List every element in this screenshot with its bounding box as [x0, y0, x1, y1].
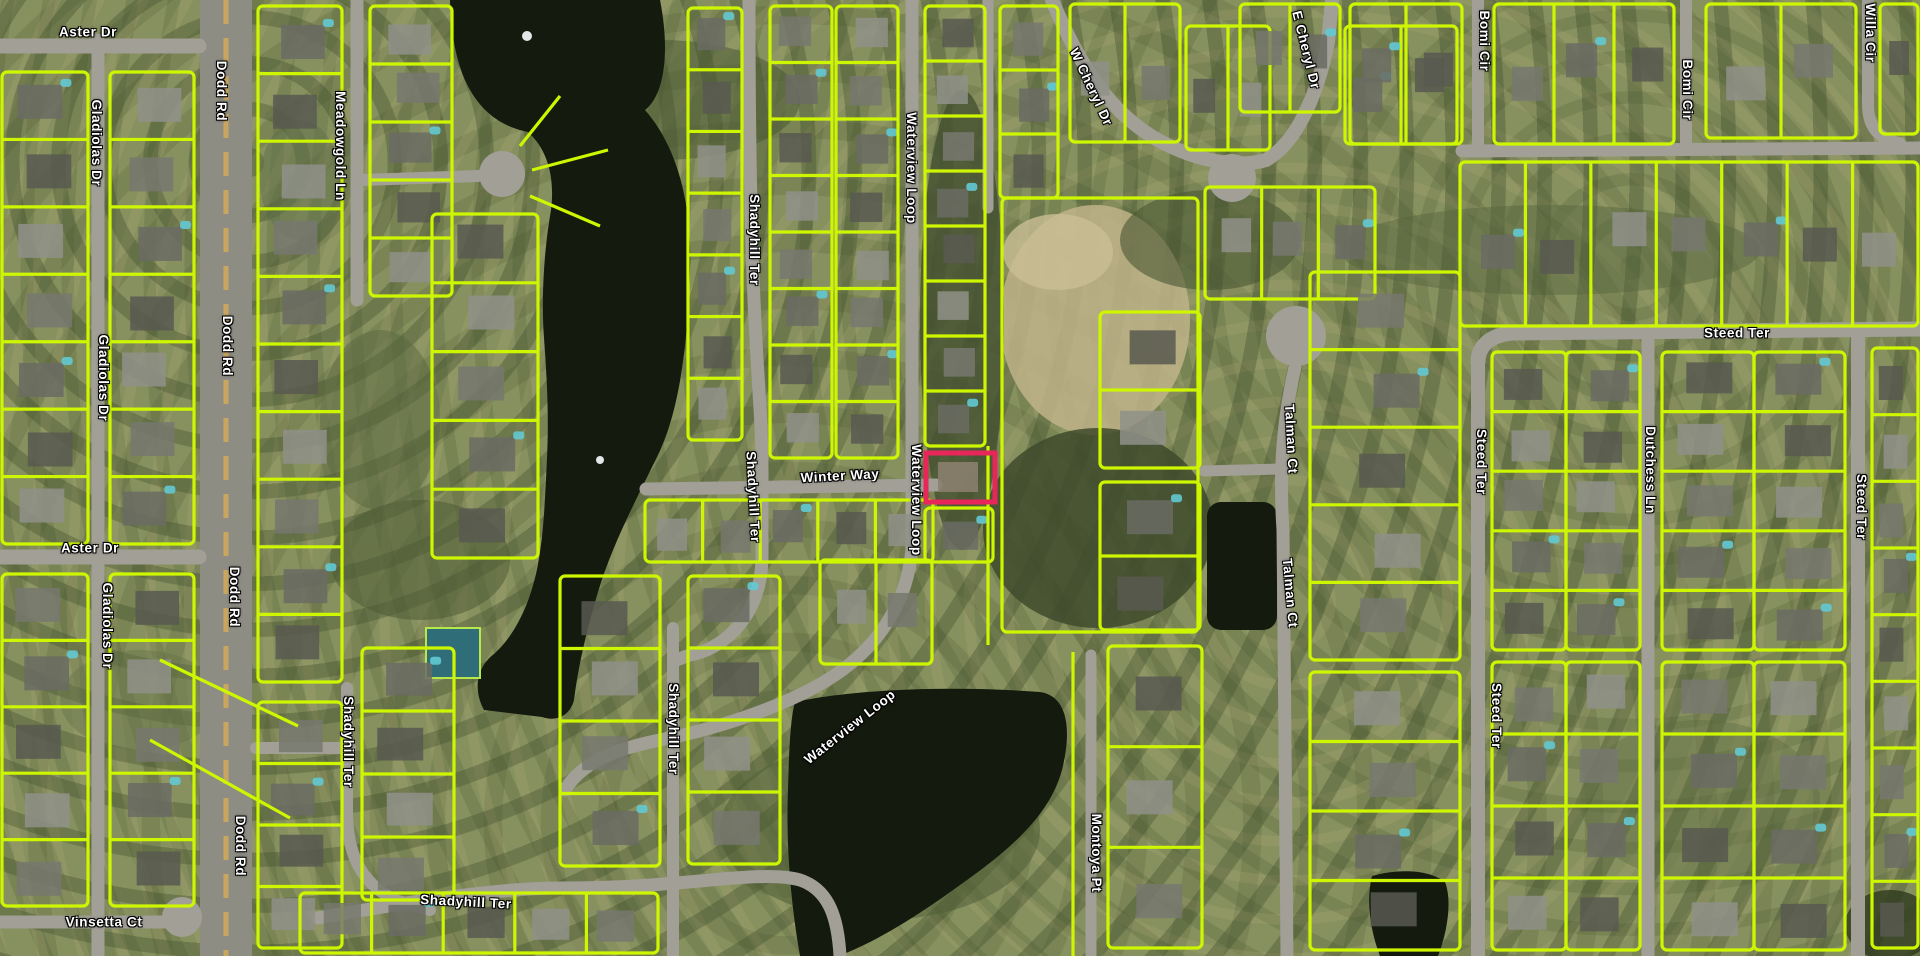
house-roof — [592, 661, 638, 695]
pool — [1627, 364, 1638, 372]
house-roof — [1785, 548, 1831, 579]
house-roof — [1580, 749, 1618, 783]
pool — [816, 291, 827, 299]
house-roof — [1889, 41, 1909, 75]
house-roof — [469, 437, 515, 471]
pool — [966, 183, 977, 191]
house-roof — [1771, 681, 1817, 715]
house-roof — [1374, 374, 1420, 408]
parcel-block — [2, 574, 88, 906]
house-roof — [130, 296, 174, 330]
pool — [1325, 28, 1336, 36]
parcel-block — [1754, 352, 1845, 650]
house-roof — [27, 154, 72, 188]
house-roof — [698, 388, 726, 420]
house-roof — [1880, 765, 1904, 799]
house-roof — [1879, 628, 1903, 662]
house-roof — [1803, 228, 1837, 262]
pool — [180, 221, 191, 229]
parcel-block — [1566, 352, 1640, 650]
house-roof — [458, 366, 504, 400]
house-roof — [1879, 503, 1903, 537]
house-roof — [280, 835, 324, 867]
house-roof — [1687, 485, 1733, 516]
house-roof — [856, 134, 888, 163]
house-roof — [1273, 222, 1302, 256]
parcel-block — [110, 72, 194, 544]
pool — [976, 516, 987, 524]
pool — [886, 128, 897, 136]
pool — [724, 267, 735, 275]
house-roof — [1587, 675, 1625, 709]
parcel-block — [1662, 352, 1754, 650]
pool — [164, 486, 175, 494]
house-roof — [1515, 822, 1553, 856]
house-roof — [17, 862, 62, 896]
house-roof — [1884, 559, 1908, 593]
parcel-block — [1492, 352, 1566, 650]
terrain-patch — [1003, 214, 1113, 290]
house-roof — [20, 489, 65, 523]
house-roof — [1370, 763, 1416, 797]
house-roof — [1566, 43, 1597, 77]
house-roof — [1301, 34, 1327, 68]
house-roof — [138, 88, 182, 122]
house-roof — [942, 19, 973, 48]
house-roof — [1777, 610, 1823, 641]
parcel-block — [370, 6, 452, 296]
house-roof — [276, 625, 320, 659]
pool — [1906, 553, 1917, 561]
house-roof — [1781, 904, 1827, 938]
house-roof — [581, 601, 627, 635]
pool — [513, 431, 524, 439]
lake-fountain — [596, 456, 604, 464]
house-roof — [271, 898, 315, 930]
house-roof — [532, 909, 569, 940]
house-roof — [1508, 896, 1546, 930]
house-roof — [850, 193, 882, 222]
house-roof — [468, 296, 514, 330]
pool — [62, 357, 73, 365]
house-roof — [1880, 903, 1904, 937]
house-roof — [773, 510, 803, 542]
pool — [313, 778, 324, 786]
parcel-block — [1108, 646, 1202, 948]
pool — [1819, 358, 1830, 366]
house-roof — [1580, 897, 1618, 931]
house-roof — [137, 851, 181, 885]
pool — [1418, 368, 1429, 376]
house-roof — [943, 132, 974, 161]
pool — [967, 399, 978, 407]
house-roof — [1256, 31, 1282, 65]
house-roof — [283, 430, 327, 464]
house-roof — [128, 783, 172, 817]
house-roof — [779, 17, 811, 46]
house-roof — [1136, 884, 1182, 918]
house-roof — [1677, 424, 1723, 455]
house-roof — [282, 164, 326, 198]
house-roof — [943, 235, 974, 264]
parcel-block — [1662, 662, 1754, 950]
house-roof — [1359, 454, 1405, 488]
e-cheryl-dr-road — [1266, 0, 1332, 160]
map-viewport[interactable]: Aster DrGladiolas DrDodd RdMeadowgold Ln… — [0, 0, 1920, 956]
house-roof — [389, 132, 432, 162]
house-roof — [704, 737, 750, 771]
house-roof — [1136, 677, 1182, 711]
house-roof — [1354, 691, 1400, 725]
house-roof — [787, 413, 819, 442]
pool — [1544, 741, 1555, 749]
parcel-block — [1872, 348, 1918, 948]
house-roof — [856, 18, 888, 47]
house-roof — [1632, 48, 1663, 82]
house-roof — [18, 224, 63, 258]
house-roof — [273, 95, 317, 129]
parcel-block — [1492, 662, 1566, 950]
pool — [430, 657, 441, 665]
house-roof — [1353, 78, 1382, 112]
house-roof — [851, 414, 883, 443]
house-roof — [1375, 534, 1421, 568]
parcel-block — [1494, 4, 1674, 144]
house-roof — [388, 24, 431, 54]
house-roof — [378, 858, 424, 891]
house-roof — [857, 251, 889, 280]
selected-parcel-house — [938, 462, 978, 492]
house-roof — [1672, 217, 1706, 251]
parcel-block — [645, 500, 933, 562]
parcel-block — [1880, 4, 1918, 134]
house-roof — [704, 336, 732, 368]
house-roof — [698, 145, 726, 177]
house-roof — [1691, 754, 1737, 788]
house-roof — [135, 591, 179, 625]
house-roof — [1362, 48, 1391, 82]
house-roof — [1014, 154, 1044, 187]
house-roof — [1780, 755, 1826, 789]
pool — [324, 284, 335, 292]
house-roof — [1879, 366, 1903, 400]
house-roof — [937, 75, 968, 104]
parcel-block — [1754, 662, 1845, 950]
house-roof — [131, 422, 175, 456]
house-roof — [857, 356, 889, 385]
house-roof — [888, 514, 918, 546]
house-roof — [1794, 44, 1833, 78]
pool — [60, 79, 71, 87]
house-roof — [19, 363, 64, 397]
house-roof — [657, 519, 687, 551]
pool — [816, 69, 827, 77]
house-roof — [851, 298, 883, 327]
house-roof — [1193, 79, 1215, 113]
house-roof — [275, 499, 319, 533]
pool — [1735, 748, 1746, 756]
house-roof — [386, 663, 432, 696]
house-roof — [703, 82, 731, 114]
pool — [1363, 219, 1374, 227]
house-roof — [1587, 823, 1625, 857]
house-roof — [1726, 66, 1765, 100]
house-roof — [387, 793, 433, 826]
house-roof — [397, 73, 440, 103]
house-roof — [786, 297, 818, 326]
house-roof — [703, 588, 749, 622]
house-roof — [16, 725, 61, 759]
house-roof — [1505, 603, 1543, 634]
house-roof — [28, 432, 73, 466]
house-roof — [888, 593, 917, 627]
pool — [1389, 42, 1400, 50]
lake-fountain — [522, 31, 532, 41]
house-roof — [1776, 487, 1822, 518]
house-roof — [1688, 608, 1734, 639]
house-roof — [1682, 828, 1728, 862]
house-roof — [1120, 411, 1166, 445]
house-roof — [18, 85, 63, 119]
pool — [1907, 828, 1918, 836]
house-roof — [714, 811, 760, 845]
house-roof — [938, 291, 969, 320]
pool — [1595, 37, 1606, 45]
pool — [1513, 229, 1524, 237]
house-roof — [284, 569, 328, 603]
pool — [801, 504, 812, 512]
house-roof — [1081, 62, 1110, 96]
house-roof — [459, 508, 505, 542]
house-roof — [1862, 233, 1896, 267]
house-roof — [1512, 430, 1550, 461]
pond-talman — [1207, 502, 1277, 630]
parcel-block — [820, 560, 932, 664]
pool — [325, 563, 336, 571]
terrain-patch — [983, 428, 1213, 628]
house-roof — [938, 405, 969, 434]
house-roof — [713, 662, 759, 696]
house-roof — [937, 189, 968, 218]
culdesac-bulb — [1266, 306, 1326, 366]
pool — [1613, 598, 1624, 606]
house-roof — [1678, 547, 1724, 578]
house-roof — [281, 25, 325, 59]
house-roof — [850, 76, 882, 105]
house-roof — [1481, 235, 1515, 269]
house-roof — [837, 590, 866, 624]
pool — [637, 805, 648, 813]
parcel-block — [836, 6, 898, 458]
parcel-block — [1706, 4, 1856, 138]
house-roof — [1692, 902, 1738, 936]
house-roof — [15, 588, 60, 622]
pool — [1399, 829, 1410, 837]
winter-way-road — [646, 485, 936, 489]
house-roof — [1744, 222, 1778, 256]
house-roof — [1577, 604, 1615, 635]
house-roof — [27, 293, 72, 327]
house-roof — [593, 811, 639, 845]
house-roof — [390, 252, 433, 282]
pool — [170, 777, 181, 785]
parcel-block — [300, 893, 658, 953]
house-roof — [1019, 88, 1049, 121]
house-roof — [138, 227, 182, 261]
house-roof — [1686, 362, 1732, 393]
culdesac-bulb — [479, 151, 525, 197]
house-roof — [1771, 830, 1817, 864]
house-roof — [943, 522, 978, 550]
pool — [1624, 817, 1635, 825]
parcel-block — [2, 72, 88, 544]
parcel-block — [1070, 4, 1180, 142]
pool — [67, 650, 78, 658]
house-roof — [282, 290, 326, 324]
house-roof — [123, 492, 167, 526]
house-roof — [1775, 364, 1821, 395]
house-roof — [1512, 67, 1543, 101]
house-roof — [785, 75, 817, 104]
parcel-block — [258, 6, 342, 682]
house-roof — [1508, 747, 1546, 781]
aerial-parcel-layers — [0, 0, 1920, 956]
house-roof — [127, 659, 171, 693]
house-roof — [324, 903, 361, 934]
house-roof — [388, 905, 425, 936]
house-roof — [1884, 696, 1908, 730]
house-roof — [1424, 53, 1453, 87]
house-roof — [1540, 240, 1574, 274]
house-roof — [1358, 294, 1404, 328]
house-roof — [24, 656, 69, 690]
pool — [1549, 535, 1560, 543]
culdesac-bulb — [162, 897, 202, 937]
pool — [1171, 494, 1182, 502]
house-roof — [25, 793, 70, 827]
house-roof — [1785, 425, 1831, 456]
house-roof — [1335, 225, 1364, 259]
house-roof — [597, 911, 634, 942]
pool — [1815, 824, 1826, 832]
house-roof — [1612, 212, 1646, 246]
house-roof — [1222, 218, 1251, 252]
house-roof — [1591, 370, 1629, 401]
house-roof — [274, 360, 318, 394]
pool — [323, 19, 334, 27]
house-roof — [1884, 435, 1908, 469]
house-roof — [697, 18, 725, 50]
house-roof — [1360, 598, 1406, 632]
house-roof — [1504, 369, 1542, 400]
culdesac-bulb — [1208, 154, 1256, 202]
house-roof — [1127, 500, 1173, 534]
house-roof — [698, 273, 726, 305]
house-roof — [582, 736, 628, 770]
house-roof — [836, 512, 866, 544]
house-roof — [1681, 680, 1727, 714]
parcel-block — [1000, 6, 1058, 198]
house-roof — [780, 355, 812, 384]
house-roof — [703, 209, 731, 241]
house-roof — [279, 720, 323, 752]
house-roof — [457, 225, 503, 259]
house-roof — [1504, 480, 1542, 511]
pool — [1722, 541, 1733, 549]
house-roof — [130, 157, 174, 191]
house-roof — [1130, 330, 1176, 364]
parcel-block — [1566, 662, 1640, 950]
house-roof — [1127, 780, 1173, 814]
pool — [1821, 604, 1832, 612]
house-roof — [786, 191, 818, 220]
talman-ct-spur-road — [1204, 469, 1281, 471]
house-roof — [780, 250, 812, 279]
house-roof — [1885, 834, 1909, 868]
house-roof — [721, 520, 751, 552]
house-roof — [1584, 543, 1622, 574]
house-roof — [377, 728, 423, 761]
house-roof — [1512, 541, 1550, 572]
parcel-block — [1310, 272, 1460, 660]
house-roof — [274, 221, 318, 255]
house-roof — [1584, 432, 1622, 463]
house-roof — [944, 348, 975, 377]
house-roof — [1515, 687, 1553, 721]
pool — [1776, 216, 1787, 224]
house-roof — [467, 907, 504, 938]
house-roof — [1355, 835, 1401, 869]
house-roof — [1576, 481, 1614, 512]
terrain-patch — [320, 330, 440, 510]
pool — [747, 582, 758, 590]
pool — [723, 12, 734, 20]
bomi-cir-h-road — [1462, 148, 1920, 151]
house-roof — [1013, 22, 1043, 55]
house-roof — [779, 133, 811, 162]
house-roof — [1371, 892, 1417, 926]
house-roof — [1142, 66, 1171, 100]
house-roof — [122, 353, 166, 387]
parcel-block — [362, 648, 454, 900]
pool — [430, 126, 441, 134]
house-roof — [1117, 577, 1163, 611]
talman-ct-road — [1282, 367, 1296, 956]
